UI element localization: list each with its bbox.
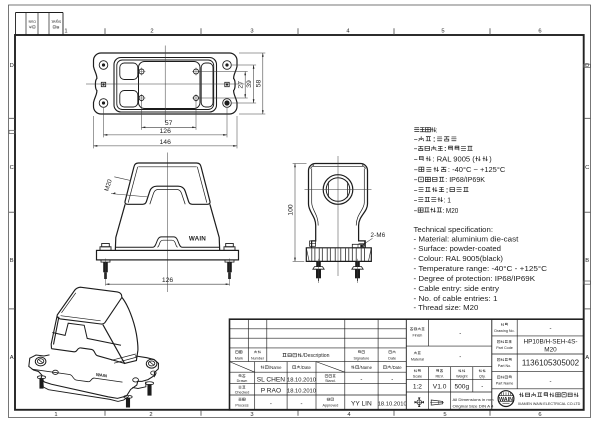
svg-text:C: C [10, 165, 14, 171]
svg-text:3: 3 [250, 28, 253, 34]
svg-text:SL CHEN: SL CHEN [257, 376, 286, 383]
svg-text:WAIN: WAIN [499, 397, 513, 403]
svg-text:- Thread size: M20: - Thread size: M20 [414, 305, 479, 312]
svg-text:-: - [414, 137, 418, 144]
svg-text:- Cable entry: side entry: - Cable entry: side entry [414, 286, 500, 293]
svg-text:-: - [550, 379, 552, 385]
svg-text:- Colour: RAL 9005(black): - Colour: RAL 9005(black) [414, 256, 504, 263]
svg-text:1: 1 [64, 28, 67, 34]
svg-text:HP10B/H-SEH-4S-: HP10B/H-SEH-4S- [524, 339, 578, 346]
svg-text:-: - [550, 326, 552, 332]
svg-text:Weight: Weight [456, 375, 467, 379]
svg-text:Drawn: Drawn [237, 379, 248, 383]
svg-text:Date: Date [388, 356, 396, 360]
svg-text::: : [432, 137, 436, 144]
svg-text:57: 57 [165, 120, 173, 127]
svg-text::: : [436, 127, 438, 134]
svg-text:XIAMEN WAIN ELECTRICAL CO.LTD: XIAMEN WAIN ELECTRICAL CO.LTD [518, 402, 581, 406]
svg-text:-: - [481, 384, 483, 390]
svg-text:Part Name: Part Name [496, 382, 514, 386]
svg-text:Process: Process [235, 404, 248, 408]
svg-text:-: - [414, 146, 418, 153]
svg-text::: : [444, 146, 448, 153]
svg-text:C: C [585, 165, 589, 171]
svg-text:18.10.2010: 18.10.2010 [287, 377, 316, 383]
svg-text:Drawing No.: Drawing No. [494, 329, 514, 333]
svg-text:/Date: /Date [301, 365, 312, 370]
svg-text:-: - [459, 331, 461, 337]
svg-text:): ) [489, 157, 491, 164]
svg-text:58: 58 [255, 80, 262, 88]
svg-text:-: - [360, 377, 362, 383]
svg-text:39: 39 [246, 80, 253, 88]
svg-text:-: - [414, 167, 419, 174]
svg-text:Material: Material [411, 357, 424, 361]
svg-text:- Surface: powder-coated: - Surface: powder-coated [414, 246, 502, 253]
svg-text:126: 126 [160, 128, 172, 135]
svg-text:-: - [270, 401, 272, 407]
svg-text:WAIN: WAIN [189, 235, 206, 242]
svg-text:Technical specification:: Technical specification: [414, 227, 494, 234]
svg-text:- No. of cable entries: 1: - No. of cable entries: 1 [414, 296, 498, 303]
svg-text:: RAL 9005 (: : RAL 9005 ( [433, 157, 476, 164]
svg-text:- Degree of protection: IP: - Degree of protection: IP68/IP69K [414, 276, 536, 283]
svg-text:27: 27 [238, 81, 245, 89]
svg-text:-: - [414, 157, 419, 164]
svg-text:: IP68/IP69K: : IP68/IP69K [445, 177, 485, 184]
svg-text:Finish: Finish [412, 333, 422, 337]
svg-text:146: 146 [160, 139, 172, 146]
svg-text:Mark: Mark [235, 356, 243, 360]
svg-text:1136105305002: 1136105305002 [522, 358, 580, 367]
svg-text:100: 100 [287, 204, 294, 216]
svg-text:Approved: Approved [323, 404, 339, 408]
svg-text:Number: Number [251, 356, 265, 360]
svg-text:6: 6 [538, 412, 541, 418]
svg-text:-: - [414, 187, 418, 194]
svg-text:1: 1 [54, 412, 57, 418]
svg-text:2-M6: 2-M6 [371, 232, 386, 239]
svg-text:Stand.: Stand. [325, 379, 336, 383]
svg-text:V1.0: V1.0 [433, 384, 447, 391]
svg-text:- Material: aluminium die-c: - Material: aluminium die-cast [414, 236, 519, 243]
svg-text:2: 2 [150, 28, 153, 34]
svg-text:126: 126 [162, 277, 174, 284]
svg-text:Date: Date [28, 20, 35, 24]
svg-text:/Date: /Date [391, 365, 402, 370]
svg-text:: M20: : M20 [442, 208, 458, 215]
svg-text:-: - [414, 208, 418, 215]
svg-text:Signature: Signature [354, 356, 370, 360]
svg-text:YY LIN: YY LIN [351, 400, 372, 407]
svg-text:Qty.: Qty. [479, 375, 486, 379]
svg-text:Part No.: Part No. [498, 364, 512, 368]
svg-text:- Temperature range: -40°C: - Temperature range: -40°C - +125°C [414, 265, 548, 273]
svg-text:P RAO: P RAO [261, 388, 281, 395]
svg-text:Scale: Scale [413, 375, 422, 379]
svg-text:-: - [391, 377, 393, 383]
svg-text:-: - [301, 401, 303, 407]
svg-text:/Name: /Name [269, 365, 282, 370]
svg-text:Original Size DIN A 4: Original Size DIN A 4 [453, 405, 494, 409]
svg-text:B: B [10, 258, 14, 264]
svg-text:D: D [10, 63, 14, 69]
svg-text:18.10.2010: 18.10.2010 [287, 389, 316, 395]
svg-text:A: A [585, 355, 589, 361]
svg-text:Part Code: Part Code [496, 346, 513, 350]
svg-text:6: 6 [538, 28, 541, 34]
svg-text:-: - [414, 177, 418, 184]
svg-text:3: 3 [250, 412, 253, 418]
svg-text:Signat.: Signat. [51, 20, 61, 24]
svg-text:500g: 500g [454, 384, 469, 391]
svg-text:5: 5 [441, 28, 444, 34]
svg-text:/Name: /Name [359, 365, 372, 370]
svg-text:5: 5 [443, 412, 446, 418]
svg-text:REV.: REV. [435, 375, 443, 379]
svg-text:: 1: : 1 [444, 197, 452, 204]
svg-text:All Dimensions in mm: All Dimensions in mm [453, 398, 494, 402]
svg-text:2: 2 [149, 412, 152, 418]
svg-text:18.10.2010: 18.10.2010 [378, 401, 407, 407]
svg-text::: : [445, 187, 449, 194]
svg-text:A: A [10, 355, 14, 361]
svg-text:-: - [414, 197, 418, 204]
svg-text:: -40°C ~ +125°C: : -40°C ~ +125°C [448, 166, 505, 174]
svg-text:1:2: 1:2 [413, 384, 422, 391]
svg-text:M20: M20 [544, 347, 557, 354]
svg-text:/Description: /Description [302, 353, 329, 359]
svg-text:Checked: Checked [235, 390, 250, 394]
svg-text:-: - [459, 355, 461, 361]
svg-text:B: B [585, 258, 589, 264]
